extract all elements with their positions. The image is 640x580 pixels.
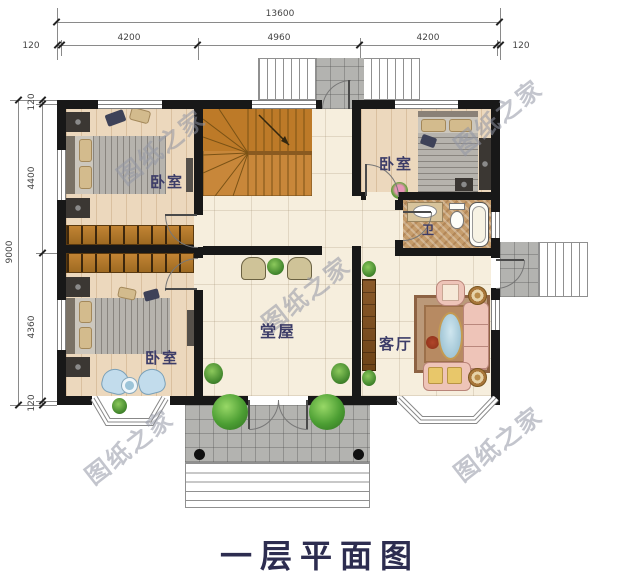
dim-seg-right: 4200	[398, 32, 458, 44]
wall	[194, 247, 203, 258]
desk	[187, 310, 194, 346]
corner-plant	[204, 363, 223, 384]
toilet-tank	[449, 203, 465, 210]
staircase	[203, 109, 312, 196]
wall	[491, 288, 500, 300]
dim-hseg-1: 120	[26, 90, 38, 114]
room-label-bedroom-tl: 卧室	[137, 171, 197, 192]
bay-table	[121, 377, 138, 394]
bed-headboard	[66, 298, 75, 354]
tv-cabinet	[362, 279, 376, 371]
nightstand	[66, 277, 90, 297]
room-label-living: 客厅	[366, 333, 426, 354]
corner-plant	[331, 363, 350, 384]
wall	[203, 246, 322, 255]
bathtub-inner	[472, 206, 486, 243]
armchair-cushion	[442, 284, 459, 301]
dim-seg-center: 4960	[249, 32, 309, 44]
dim-line-segments	[57, 45, 500, 46]
wall	[57, 100, 66, 150]
bed-headboard	[66, 136, 75, 194]
floor-plan-canvas: 13600 4200 4960 4200 120 120 9000 120 44…	[0, 0, 640, 580]
hall-table-plant	[267, 258, 284, 275]
bed-pillow	[79, 327, 92, 349]
dim-seg-left: 4200	[99, 32, 159, 44]
room-label-bedroom-bl: 卧室	[132, 347, 192, 368]
dim-line-total-width	[57, 22, 500, 23]
coffee-table	[438, 312, 463, 360]
seat-cushion	[428, 367, 443, 384]
nightstand	[66, 112, 90, 132]
dim-hseg-3: 4360	[26, 312, 38, 342]
bed-blanket	[95, 298, 170, 354]
dim-margin-right: 120	[504, 40, 538, 52]
nightstand	[66, 357, 90, 377]
side-steps	[538, 242, 588, 297]
seat-cushion	[447, 367, 462, 384]
bush	[212, 394, 248, 430]
wall	[57, 200, 66, 300]
door-leaf	[403, 211, 431, 213]
bush	[309, 394, 345, 430]
page-title: 一层平面图	[170, 531, 470, 577]
dim-ext-line	[57, 8, 58, 60]
wall	[398, 192, 491, 200]
side-table	[468, 368, 487, 387]
wall	[352, 109, 361, 196]
room-label-bedroom-tr: 卧室	[366, 153, 426, 174]
dim-total-width: 13600	[248, 8, 312, 20]
window	[57, 300, 66, 350]
window	[98, 100, 162, 109]
porch-column	[194, 449, 205, 460]
door-leaf	[248, 400, 250, 429]
window	[491, 300, 500, 330]
wall	[66, 245, 194, 253]
front-steps	[185, 462, 370, 508]
door-leaf	[165, 214, 197, 216]
plant	[112, 398, 127, 414]
door-leaf	[496, 259, 524, 261]
wall	[194, 290, 203, 396]
dim-margin-left: 120	[14, 40, 48, 52]
window	[252, 100, 316, 109]
side-table	[468, 286, 487, 305]
nightstand	[455, 178, 473, 191]
plant	[362, 370, 376, 386]
dim-line-total-height	[18, 100, 19, 405]
door-leaf	[165, 288, 197, 290]
wall	[57, 350, 66, 405]
window	[491, 212, 500, 238]
room-label-bath: 卫	[414, 221, 444, 238]
wall	[395, 200, 403, 210]
bed-pillow	[421, 119, 446, 132]
porch-column	[353, 449, 364, 460]
dim-ext-line	[500, 8, 501, 60]
window	[395, 100, 458, 109]
door-leaf	[348, 80, 350, 109]
wall	[395, 248, 491, 256]
sofa	[463, 302, 489, 370]
wall	[491, 238, 500, 258]
bed-pillow	[79, 301, 92, 323]
dim-hseg-2: 4400	[26, 163, 38, 193]
dim-total-height: 9000	[4, 230, 16, 274]
window	[57, 150, 66, 200]
wall	[352, 100, 395, 109]
door-leaf	[306, 400, 308, 429]
hall-chair	[241, 257, 266, 280]
room-label-hall: 堂屋	[248, 318, 308, 342]
bed-pillow	[79, 166, 92, 189]
bed-pillow	[79, 139, 92, 162]
bay-window-living	[394, 396, 500, 426]
wall	[491, 330, 500, 405]
nightstand	[66, 198, 90, 218]
dim-hseg-4: 120	[26, 391, 38, 415]
plant	[362, 261, 376, 277]
toilet-bowl	[450, 211, 464, 229]
